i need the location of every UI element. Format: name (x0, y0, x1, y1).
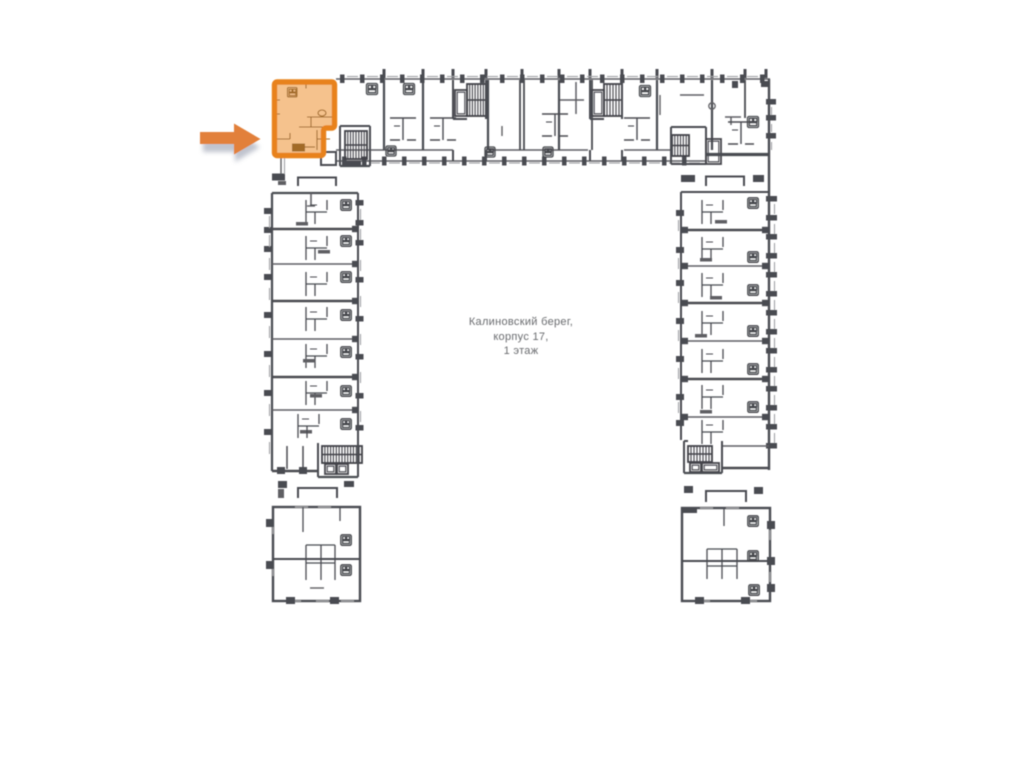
svg-text:1 этаж: 1 этаж (504, 345, 539, 357)
svg-text:Калиновский берег,: Калиновский берег, (469, 316, 573, 328)
svg-text:корпус 17,: корпус 17, (493, 331, 548, 343)
